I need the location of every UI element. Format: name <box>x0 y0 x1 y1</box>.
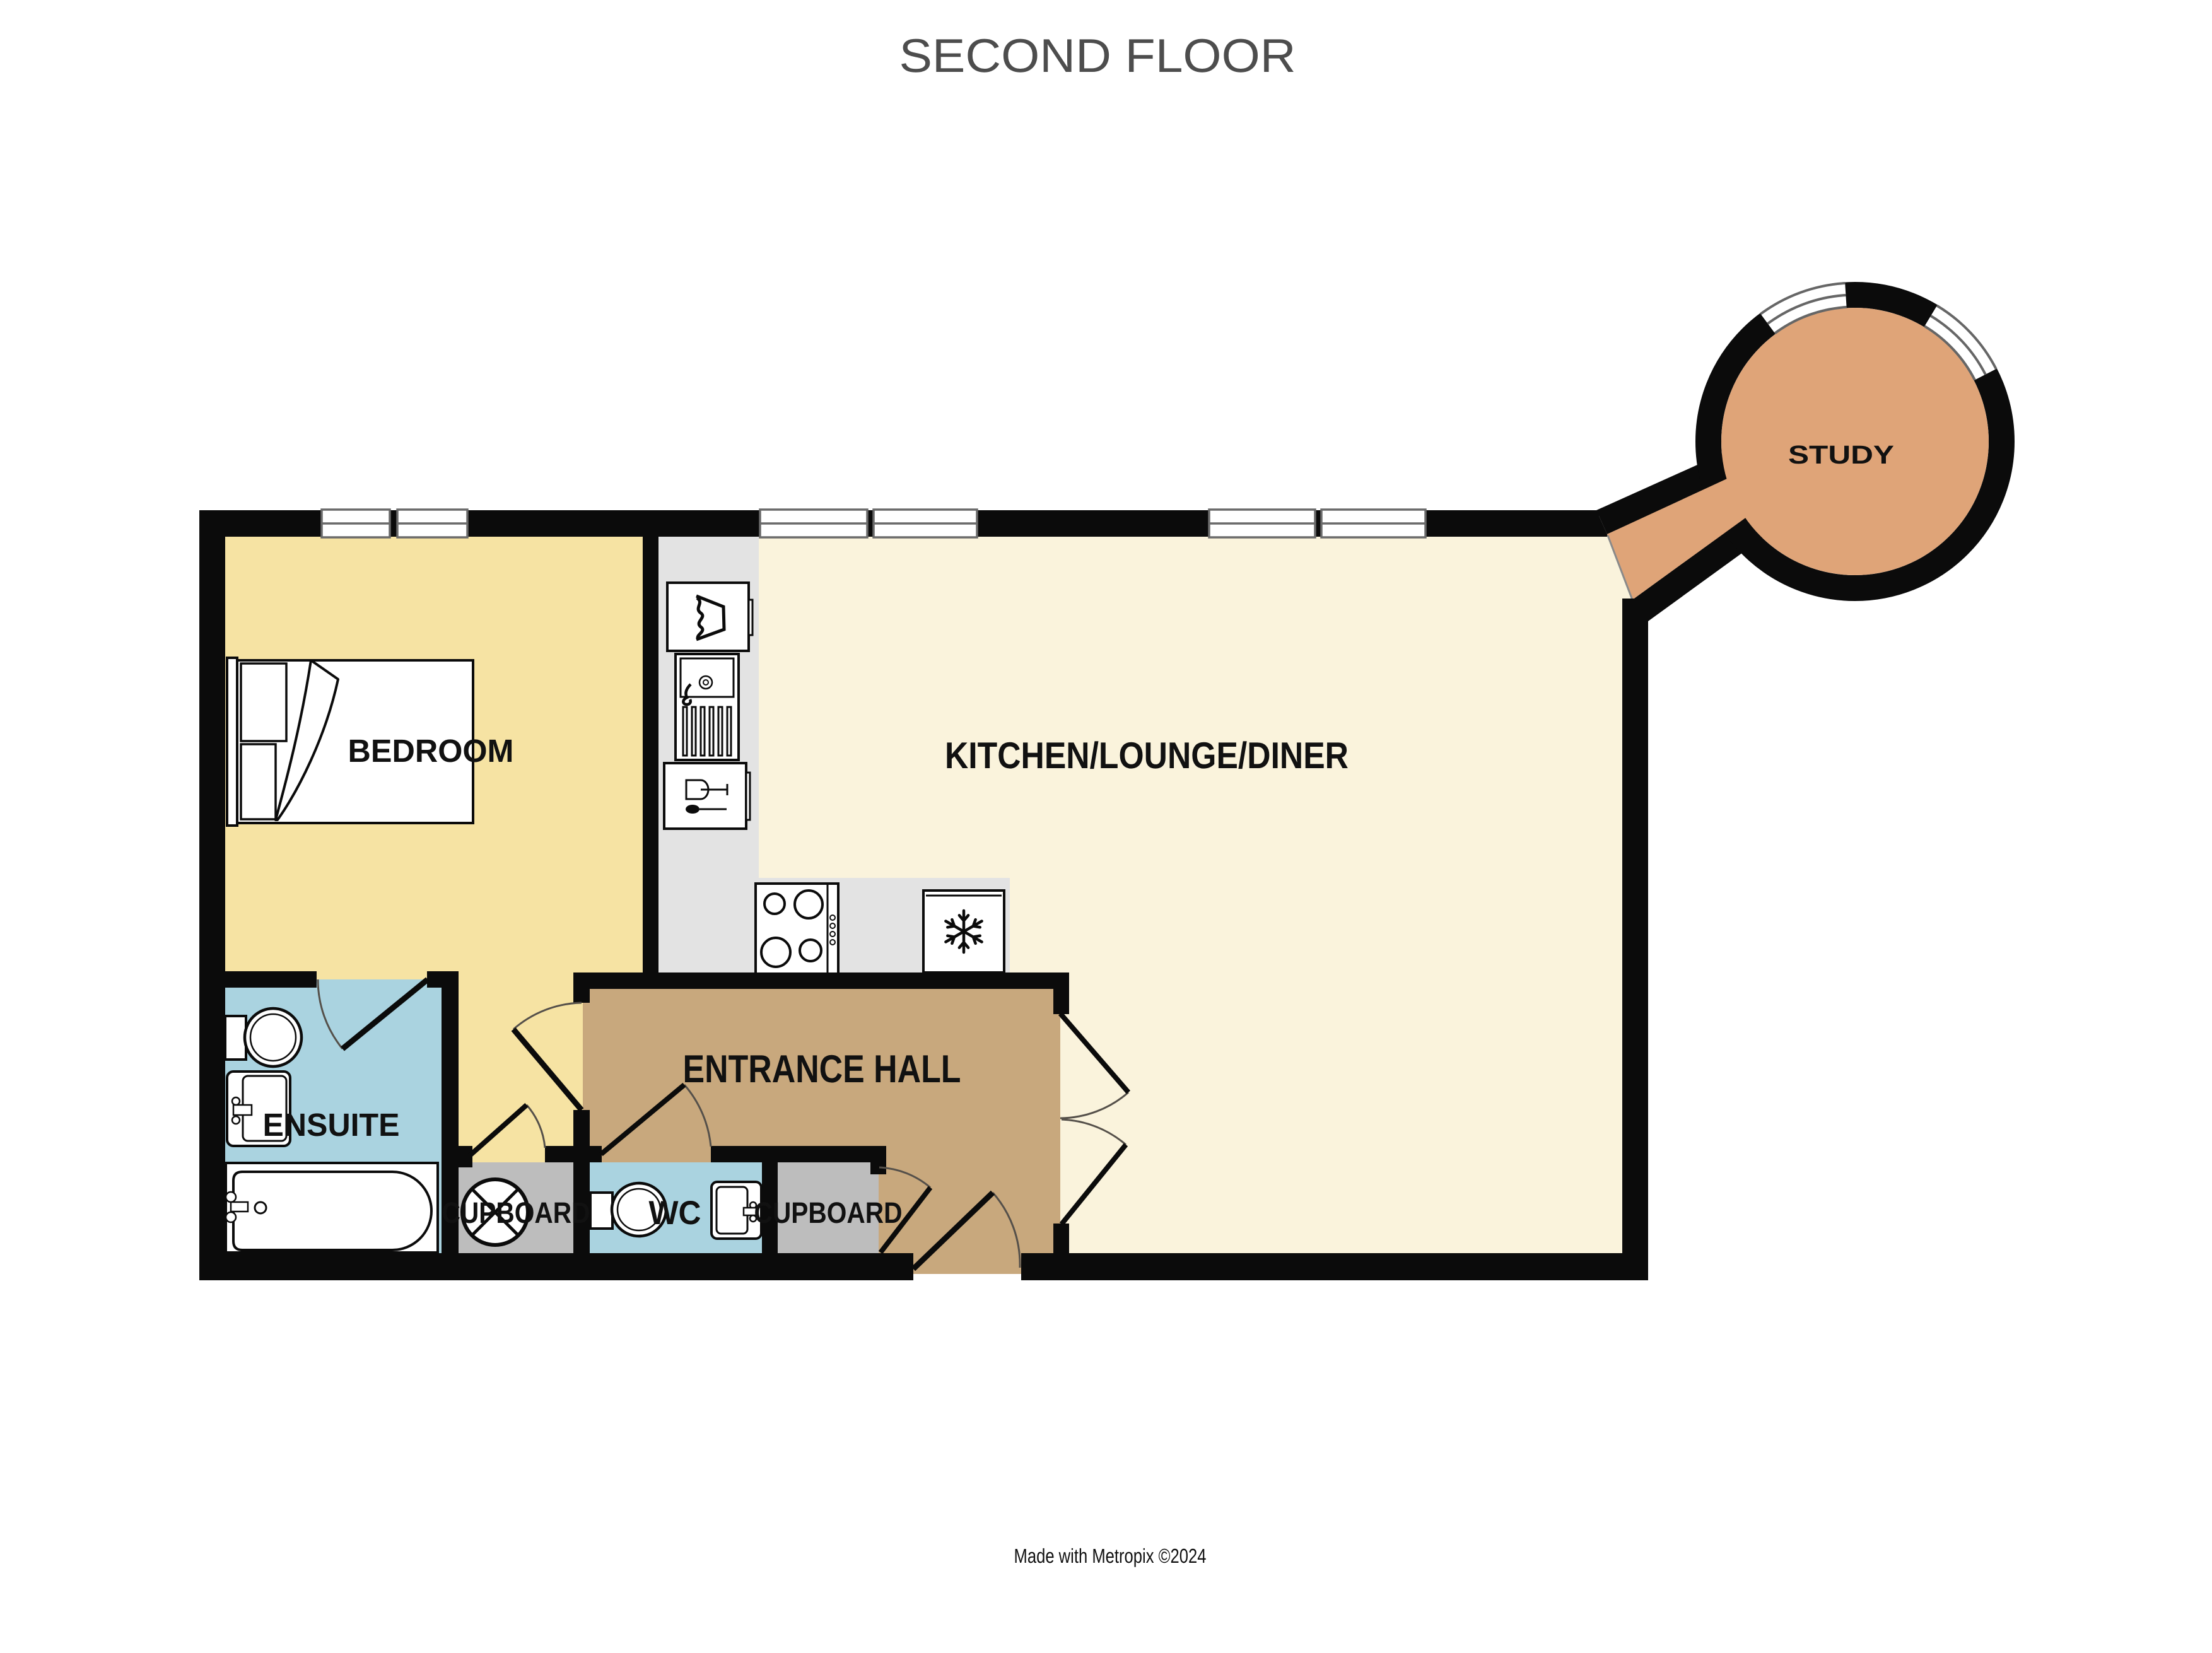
svg-text:WC: WC <box>649 1194 701 1232</box>
svg-text:CUPBOARD: CUPBOARD <box>754 1196 903 1229</box>
svg-text:BEDROOM: BEDROOM <box>348 733 514 769</box>
svg-text:ENSUITE: ENSUITE <box>263 1107 400 1143</box>
svg-text:STUDY: STUDY <box>1788 440 1894 469</box>
svg-text:CUPBOARD: CUPBOARD <box>442 1196 590 1229</box>
svg-text:Made with Metropix ©2024: Made with Metropix ©2024 <box>1014 1545 1207 1567</box>
svg-text:KITCHEN/LOUNGE/DINER: KITCHEN/LOUNGE/DINER <box>945 735 1349 776</box>
svg-text:SECOND FLOOR: SECOND FLOOR <box>899 29 1296 82</box>
svg-text:ENTRANCE HALL: ENTRANCE HALL <box>683 1048 961 1091</box>
